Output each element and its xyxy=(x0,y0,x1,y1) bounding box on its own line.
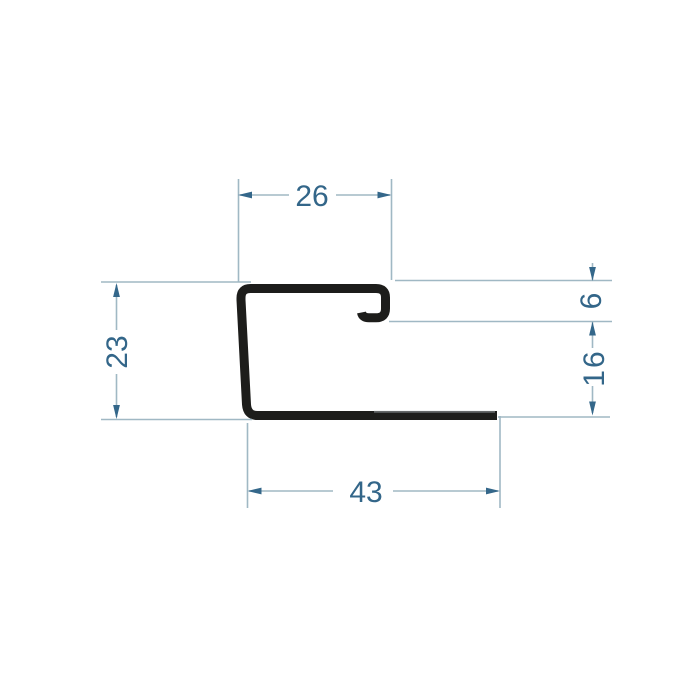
arrow-left-icon xyxy=(248,488,262,495)
dimension-right-lower: 16 xyxy=(498,322,611,418)
dimension-label-right-hook: 6 xyxy=(575,293,608,310)
arrow-right-icon xyxy=(486,488,500,495)
dimension-label-top-width: 26 xyxy=(295,180,328,213)
dimension-label-right-lower: 16 xyxy=(578,349,611,386)
dimension-label-left-height: 23 xyxy=(101,335,134,368)
arrow-down-icon xyxy=(113,405,120,419)
arrow-right-icon xyxy=(378,192,392,199)
drawing-canvas: 26 23 6 16 xyxy=(0,0,700,700)
profile-drawing: 26 23 6 16 xyxy=(0,0,700,700)
dimension-top-width: 26 xyxy=(238,179,392,282)
profile-outline xyxy=(241,289,497,416)
arrow-down-icon xyxy=(589,402,596,416)
dimension-label-bottom-width: 43 xyxy=(349,476,382,509)
arrow-left-icon xyxy=(238,192,252,199)
arrow-up-icon xyxy=(113,283,120,297)
dimension-right-hook: 6 xyxy=(389,263,612,322)
arrow-down-icon xyxy=(589,267,596,281)
arrow-up-icon xyxy=(589,322,596,336)
dimension-left-height: 23 xyxy=(101,282,252,420)
dimension-bottom-width: 43 xyxy=(248,416,501,509)
